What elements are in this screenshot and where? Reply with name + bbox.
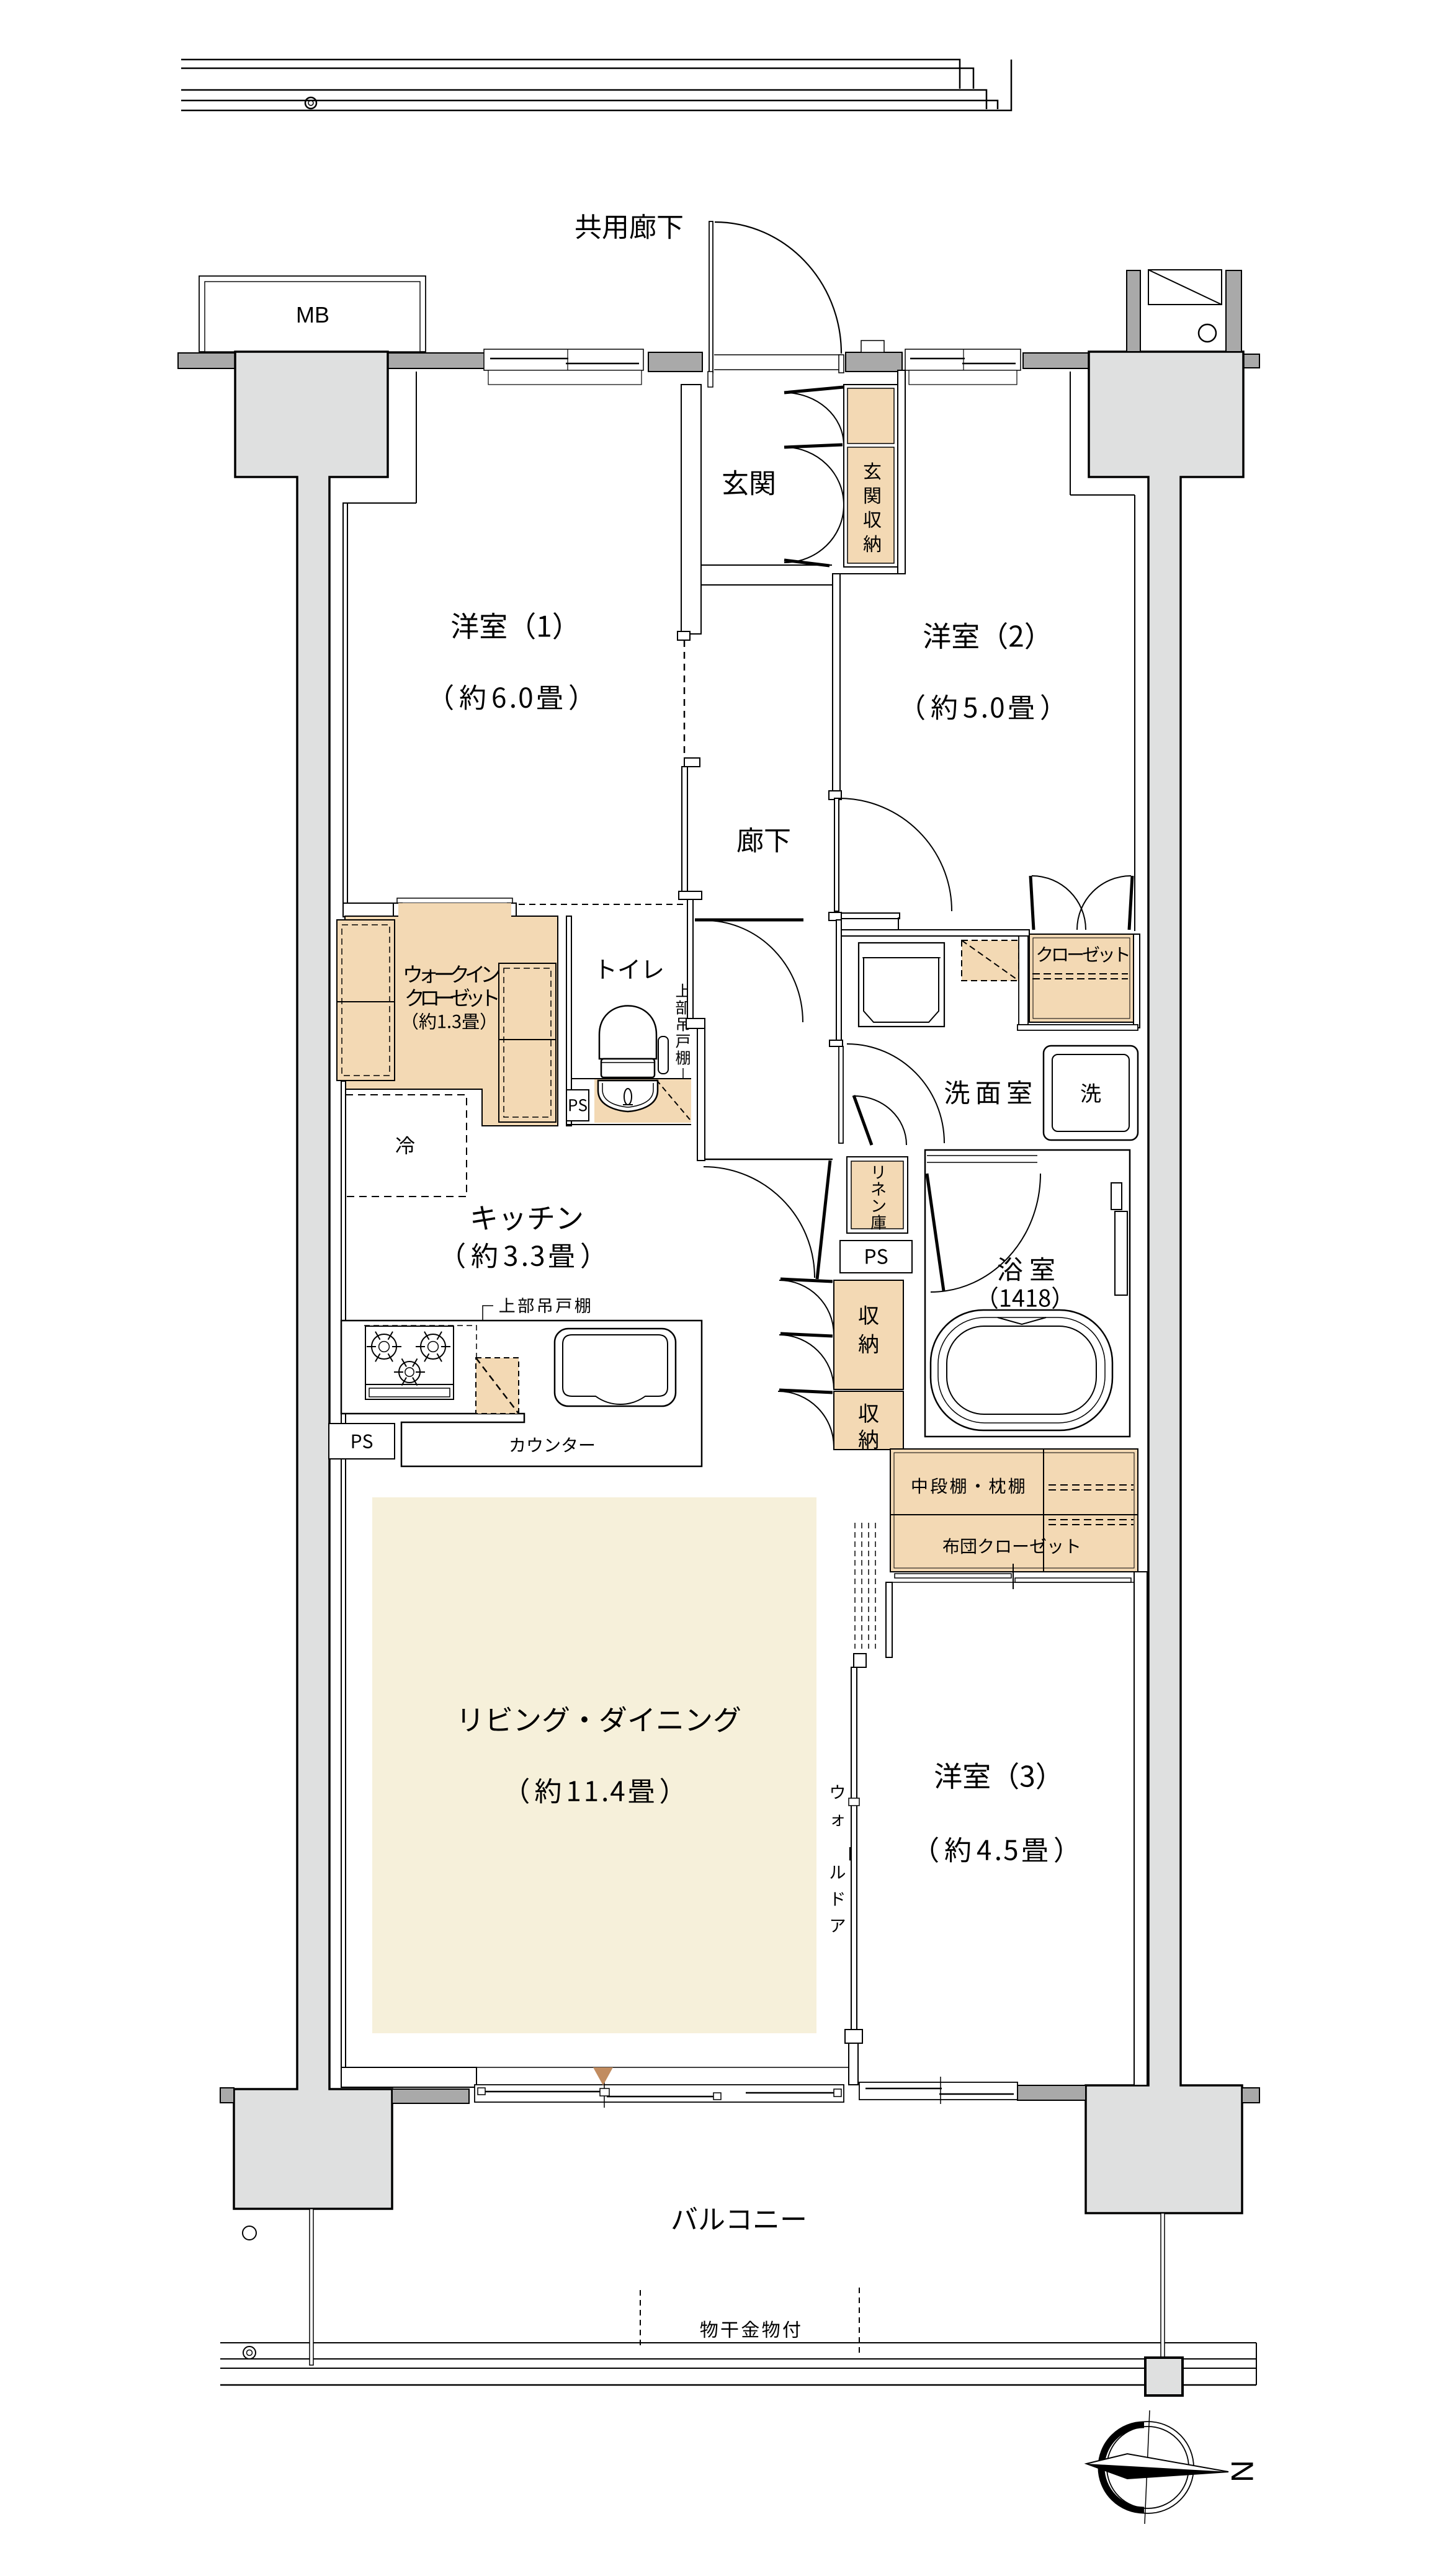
- svg-text:N: N: [1225, 2460, 1259, 2482]
- svg-text:MB: MB: [296, 302, 329, 328]
